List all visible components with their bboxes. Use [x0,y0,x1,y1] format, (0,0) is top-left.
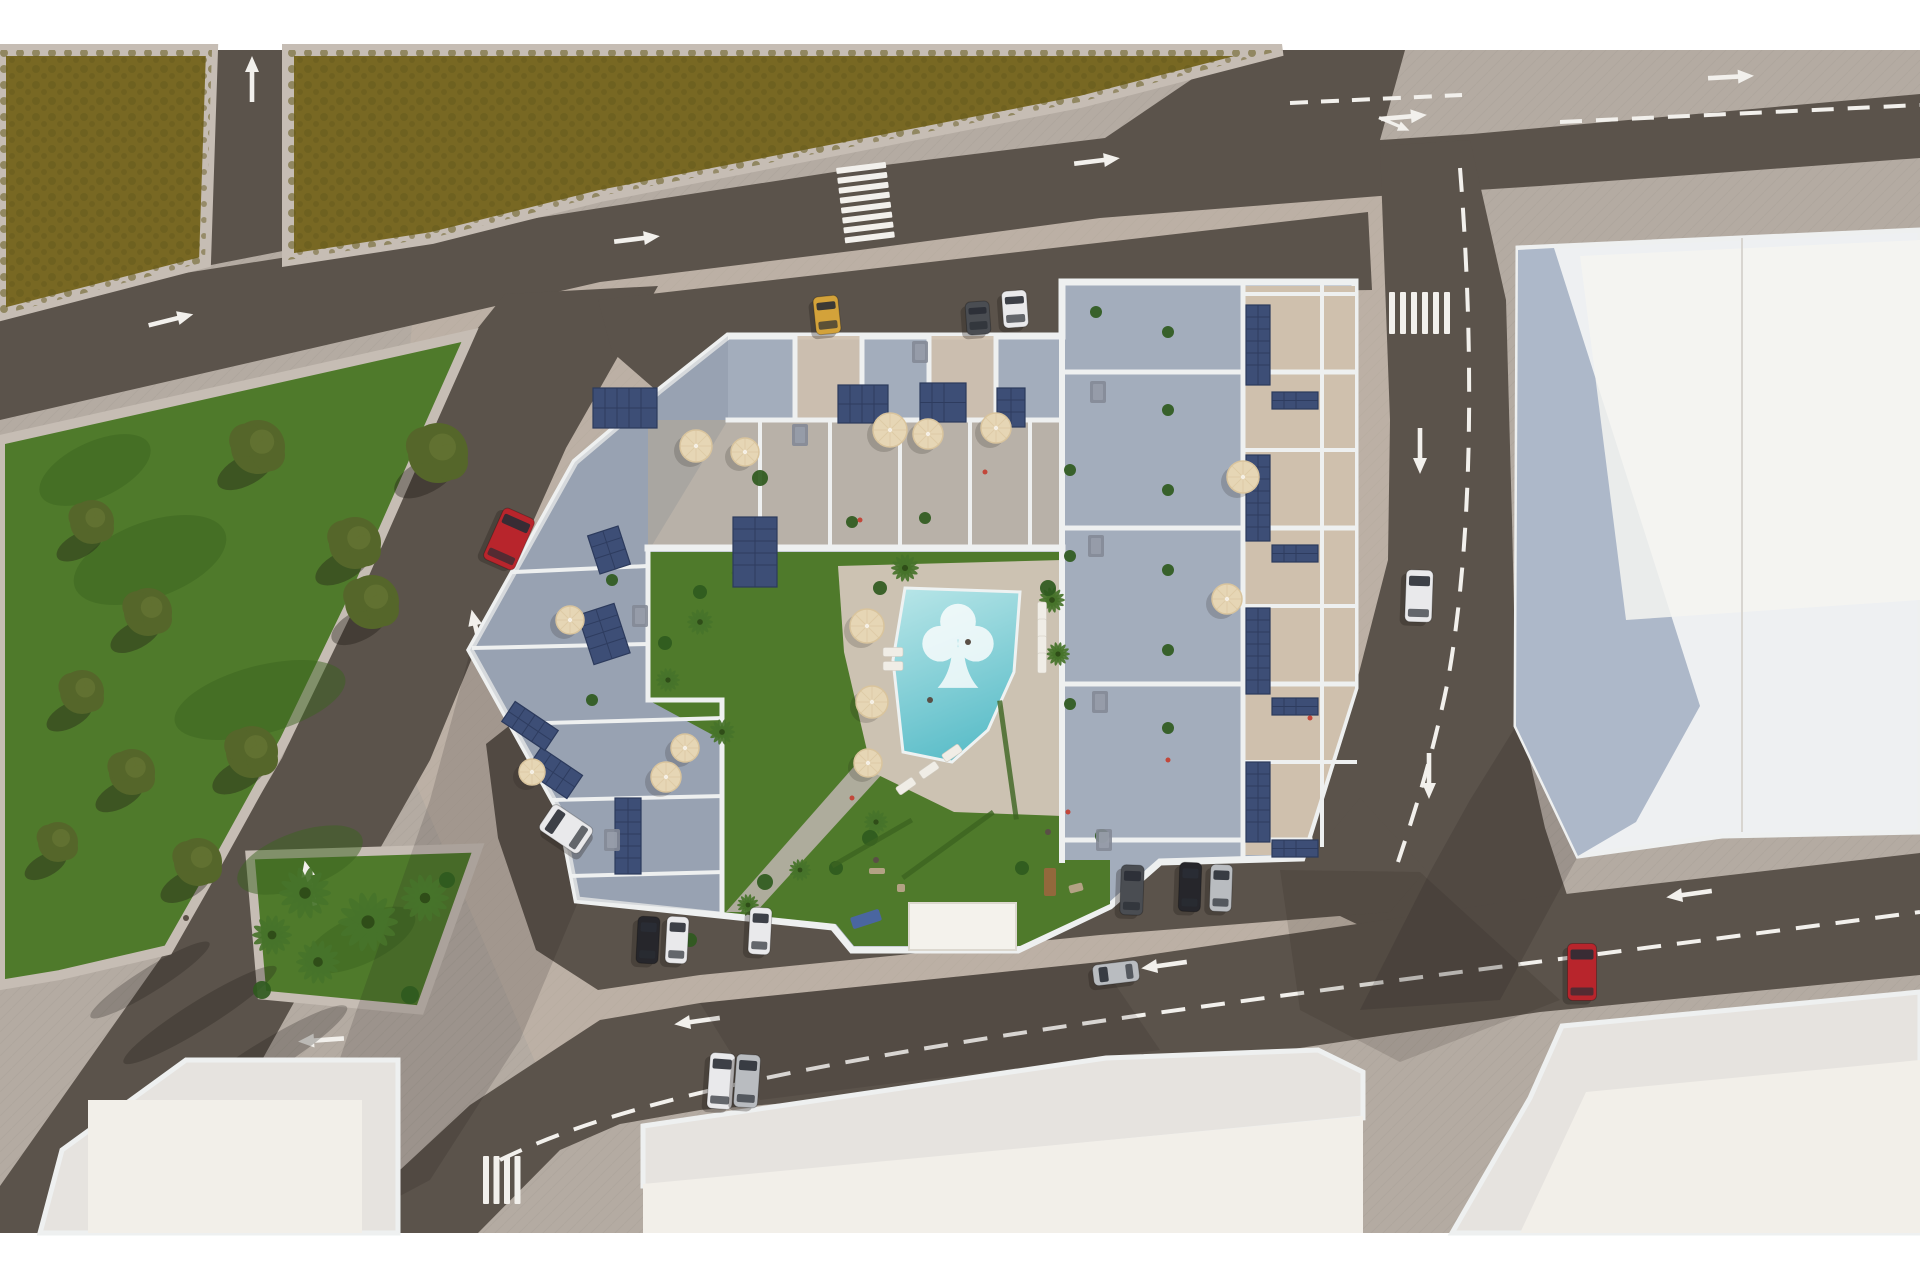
terrace-table [632,605,648,627]
bush [1162,484,1174,496]
table-inner [1093,384,1103,400]
silver-car-bottom-road [728,1053,761,1112]
umbrella-pole-tip [1225,597,1229,601]
car-windshield [1213,870,1229,880]
umbrella-pole-tip [530,770,534,774]
palm-core [361,915,374,928]
car-rear-window [639,950,655,959]
right-building-roof-highlight [1580,240,1920,620]
car-rear-window [1212,898,1228,907]
palm-core [665,677,670,682]
terrace-table [1096,829,1112,851]
tree-highlight [244,735,267,758]
solar-panel-array [733,517,777,587]
car-rear-window [969,321,988,330]
bush [693,585,707,599]
car-rear-window [737,1094,756,1103]
palm-core [420,893,431,904]
bush [586,694,598,706]
table-inner [635,608,645,624]
white-car-parked-south [660,916,690,968]
bush [439,872,455,888]
bush [1162,722,1174,734]
bush [1090,306,1102,318]
scene-svg [0,0,1920,1280]
flower-dot [850,796,855,801]
tree-highlight [347,526,370,549]
car-windshield [712,1058,732,1069]
umbrella-pole-tip [664,775,668,779]
car-windshield [1098,967,1109,983]
palm-core [719,729,725,735]
car-windshield [739,1060,758,1071]
car-windshield [1005,296,1024,305]
sun-lounger [883,648,903,657]
car-rear-window [751,941,767,950]
playground-item [1044,868,1056,896]
bush [919,512,931,524]
bush [401,986,419,1004]
terrace-table [792,424,808,446]
car-windshield [640,922,656,932]
bush [606,574,618,586]
palm-core [268,931,277,940]
sun-lounger [883,662,903,671]
tree-highlight [191,846,213,868]
person-dot [965,639,971,645]
bush [1162,564,1174,576]
white-car-parked-north [996,290,1029,333]
car-windshield [1182,868,1198,878]
silver-car-parked-southeast [1204,864,1233,916]
car-rear-window [1123,902,1140,911]
tree-highlight [250,429,274,453]
car-windshield [752,913,768,923]
bush [1162,326,1174,338]
bush [1064,550,1076,562]
sun-lounger [1038,653,1047,673]
bush [873,581,887,595]
terrace-table [1092,691,1108,713]
right-large-building [1516,230,1920,856]
umbrella-pole-tip [888,428,892,432]
palm-core [1049,597,1055,603]
gray-car-parked-southeast [1114,864,1144,919]
table-inner [1091,538,1101,554]
solar-panel-array [593,388,657,428]
tree-highlight [125,757,146,778]
terrace-table [1090,381,1106,403]
bush [757,874,773,890]
tree-highlight [429,434,456,461]
black-car-parked-southeast [1173,862,1202,916]
bush [1040,580,1056,596]
flower-dot [1166,758,1171,763]
tree-highlight [141,596,163,618]
car-rear-window [668,950,684,959]
palm-core [873,819,878,824]
palm-core [313,957,323,967]
solar-panel-array [1246,608,1270,694]
umbrella-pole-tip [870,700,874,704]
solar-panel-array [920,383,966,422]
table-inner [607,832,617,848]
person-dot [183,915,189,921]
flower-dot [858,518,863,523]
solar-panel-array [1246,762,1270,842]
person-dot [927,697,933,703]
umbrella-pole-tip [865,624,869,628]
aerial-render-canvas [0,0,1920,1280]
terrace-table [604,829,620,851]
umbrella-pole-tip [926,432,930,436]
car-rear-window [1571,988,1594,996]
terrace-table [912,341,928,363]
palm-core [697,619,703,625]
black-car-parked-south [631,916,661,968]
playground-item [897,884,905,892]
flower-dot [983,470,988,475]
table-inner [795,427,805,443]
red-car-parked-east [1563,944,1597,1005]
solar-panel-array [1272,545,1318,562]
umbrella-pole-tip [994,426,998,430]
tree-highlight [364,584,388,608]
tree-highlight [85,508,105,528]
solar-panel-array [1272,698,1318,715]
palm-core [746,903,751,908]
umbrella-pole-tip [743,450,747,454]
tree-highlight [75,678,95,698]
car-rear-window [1006,314,1026,323]
table-inner [915,344,925,360]
car-body [965,301,991,336]
playground-item [869,868,885,874]
solar-panel-array [1246,305,1270,385]
umbrella-pole-tip [568,618,572,622]
bush [1162,644,1174,656]
person-dot [1045,829,1051,835]
table-inner [1095,694,1105,710]
bush [752,470,768,486]
car-rear-window [1181,898,1197,907]
table-inner [1099,832,1109,848]
car-windshield [968,307,986,315]
bush [253,981,271,999]
car-rear-window [710,1095,730,1104]
palm-core [902,565,908,571]
pool-cabana [909,903,1016,950]
bush [1162,404,1174,416]
flower-dot [1308,716,1313,721]
person-dot [873,857,879,863]
bush [846,516,858,528]
umbrella-pole-tip [866,761,870,765]
flower-dot [1066,810,1071,815]
tree-highlight [52,829,70,847]
white-car-southbound [1399,569,1433,626]
solar-panel-array [1272,840,1318,857]
palm-core [798,868,803,873]
bottom-left-building-face [88,1100,362,1233]
palm-core [299,887,310,898]
car-windshield [669,922,685,932]
terrace-table [1088,535,1104,557]
car-rear-window [1408,609,1429,618]
car-windshield [1571,950,1594,960]
umbrella-pole-tip [683,746,687,750]
bush [1064,698,1076,710]
umbrella-pole-tip [1241,475,1245,479]
bush [658,636,672,650]
palm-core [1055,651,1060,656]
car-windshield [1124,871,1141,882]
yellow-car-parked-north [808,295,842,340]
car-windshield [1409,576,1430,587]
bush [1064,464,1076,476]
white-car-parked-south-2 [743,907,773,959]
solar-panel-array [1272,392,1318,409]
bush [1015,861,1029,875]
umbrella-pole-tip [694,444,698,448]
car-body [813,295,842,335]
